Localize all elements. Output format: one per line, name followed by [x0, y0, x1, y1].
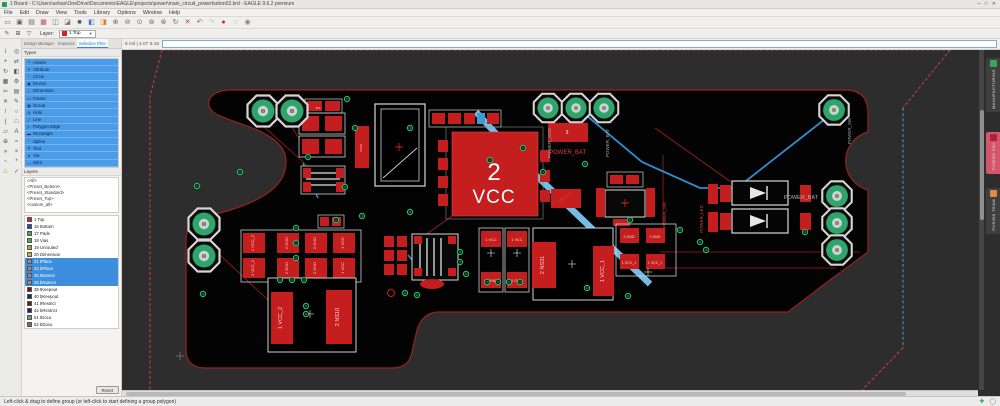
net-label: 1 VCC_1 [622, 261, 637, 265]
errors-tool-icon[interactable]: ⚠ [0, 169, 11, 176]
layer-color-swatch [27, 224, 32, 229]
layer-row-25-tnames[interactable]: 25 tNames [25, 272, 118, 279]
layer-color-swatch [27, 259, 32, 264]
drc-tool-icon[interactable]: ✓ [11, 169, 22, 176]
layer-color-swatch [27, 238, 32, 243]
types-header: Types [22, 49, 121, 57]
layer-label: Layer: [40, 31, 54, 37]
filter-icon[interactable]: ▽ [25, 30, 33, 37]
menu-tools[interactable]: Tools [74, 10, 87, 16]
test-point-via[interactable] [457, 259, 462, 264]
ns31-vcc1-module[interactable]: 2 NS31 1 VCC_1 [532, 228, 614, 300]
test-point-via[interactable] [677, 227, 682, 232]
layer-color-swatch [27, 245, 32, 250]
test-point-via[interactable] [506, 279, 511, 284]
rectangle-icon: ▬ [27, 132, 31, 136]
test-point-via[interactable] [277, 277, 282, 282]
info-tool-icon[interactable]: i [0, 49, 11, 56]
layer-row-17-pads[interactable]: 17 Pads [25, 230, 118, 237]
refresh-icon[interactable]: ↻ [171, 18, 180, 27]
layer-selected: 1 Top [69, 31, 81, 36]
tab-selection-filter[interactable]: Selection Filter [77, 39, 108, 48]
test-point-via[interactable] [293, 255, 298, 260]
test-point-via[interactable] [305, 154, 310, 159]
status-dot-icon[interactable]: ◯ [989, 398, 996, 406]
rail-tab-label: FUSION TEAM [991, 199, 996, 231]
origin-cross [176, 352, 184, 360]
pad-net-label: POWER_BAT [605, 129, 610, 158]
layer-color-swatch [27, 308, 32, 313]
net-label: 2 GND [312, 237, 317, 249]
zoom-select-icon[interactable]: ⊚ [147, 18, 156, 27]
layer-name: 19 Unrouted [34, 245, 58, 250]
type-label: Spline [33, 139, 45, 144]
net-label: 1 VCC_2 [250, 259, 255, 276]
type-row-hole[interactable]: ◎Hole [25, 109, 118, 116]
test-point-via[interactable] [333, 217, 338, 222]
net-label: 2 GND [284, 237, 289, 249]
text-icon: A [27, 146, 31, 150]
main-toolbar: ▭▣▤▦◫◪■◧◨⊕⊖⊙⊚⊛↻✕↶↷●○◉ [0, 17, 1000, 29]
coordinate-bar: 5 mil | 4.07 9.15 [122, 39, 1000, 50]
net-label: 2 GND [312, 262, 317, 274]
layer-name: 39 tKeepout [34, 287, 57, 292]
via-icon: ● [27, 154, 31, 158]
test-point-via[interactable] [495, 279, 500, 284]
layer-row-51-tdocu[interactable]: 51 tDocu [25, 314, 118, 321]
test-point-via[interactable] [352, 125, 357, 130]
part-name: POWER_BAT [549, 150, 587, 156]
grid-coordinates: 5 mil | 4.07 9.15 [125, 42, 159, 47]
menu-help[interactable]: Help [169, 10, 180, 16]
test-point-via[interactable] [484, 279, 489, 284]
layer-name: 21 tPlace [34, 259, 52, 264]
ratsnest-tool-icon[interactable]: * [11, 159, 22, 166]
menu-window[interactable]: Window [143, 10, 162, 16]
layer-select[interactable]: 1 Top ▼ [59, 30, 96, 38]
layer-row-39-tkeepout[interactable]: 39 tKeepout [25, 286, 118, 293]
layer-row-16-bottom[interactable]: 16 Bottom [25, 223, 118, 230]
spline-icon: ~ [27, 139, 31, 143]
type-row-line[interactable]: ╱Line [25, 117, 118, 124]
layer-presets-list: <All><Preset_Bottom><Preset_Standard><Pr… [24, 177, 119, 213]
type-row-via[interactable]: ●Via [25, 152, 118, 159]
device-icon: ▣ [27, 81, 31, 86]
net-label: 1 VCC [485, 238, 496, 242]
part-designator: 3 [566, 130, 569, 136]
test-point-via[interactable] [293, 240, 298, 245]
layer-name: 18 Vias [34, 238, 48, 243]
status-hint: Left-click & drag to define group (or le… [4, 399, 979, 405]
airwire-icon: ≈ [27, 60, 31, 64]
layer-row-41-trestrict[interactable]: 41 tRestrict [25, 300, 118, 307]
reset-button[interactable]: Reset [96, 386, 119, 394]
layer-color-swatch [27, 252, 32, 257]
layer-color-swatch [27, 280, 32, 285]
net-label: 2 GND [624, 235, 635, 239]
diode-label: POWER_LED [699, 205, 704, 233]
pad-net-label: POWER_GND [547, 127, 552, 158]
menu-view[interactable]: View [56, 10, 68, 16]
close-button[interactable]: ✕ [992, 1, 996, 7]
display-options-icon[interactable]: ◨ [99, 18, 108, 27]
via-tool-icon[interactable]: ⊕ [0, 139, 11, 146]
preset-custom-all[interactable]: <custom_all> [25, 202, 118, 208]
layer-row-52-bdocu[interactable]: 52 bDocu [25, 321, 118, 328]
group-tool-icon[interactable]: ▦ [0, 79, 11, 86]
highlighted-pad [477, 113, 485, 124]
test-point-via[interactable] [582, 161, 587, 166]
net-label: 2 GND [284, 262, 289, 274]
wire-icon: — [27, 161, 31, 165]
net-label: 1 VCC_1 [648, 261, 663, 265]
menu-draw[interactable]: Draw [36, 10, 49, 16]
type-label: Rectangle [33, 131, 53, 136]
horizontal-scrollbar[interactable] [122, 390, 978, 396]
group-icon: ▦ [27, 103, 31, 108]
layer-row-26-bnames[interactable]: 26 bNames [25, 279, 118, 286]
attribute-icon: ✎ [27, 67, 31, 72]
menu-options[interactable]: Options [117, 10, 136, 16]
type-label: Text [33, 146, 41, 151]
layer-name: 42 bRestrict [34, 308, 57, 313]
cut-tool-icon[interactable]: ✂ [0, 89, 11, 96]
right-tab-rail: MANUFACTURINGFUSION 360FUSION TEAM [984, 50, 1000, 390]
ring-icon[interactable]: ○ [231, 18, 240, 27]
test-point-via[interactable] [359, 213, 364, 218]
chip-label: 1 VCC_2 [278, 307, 284, 329]
polygon-tool-icon[interactable]: ▱ [0, 129, 11, 136]
net-label: 1 VCC [340, 262, 345, 274]
swap-tool-icon[interactable]: ⇄ [11, 59, 22, 66]
circle-tool-icon[interactable]: ○ [11, 109, 22, 116]
type-label: Dimension [33, 88, 54, 93]
line-icon: ╱ [27, 117, 31, 122]
layer-swatch [62, 31, 67, 36]
menu-library[interactable]: Library [94, 10, 110, 16]
mirror-tool-icon[interactable]: ◧ [11, 69, 22, 76]
minimize-button[interactable]: ─ [977, 1, 981, 7]
layer-color-swatch [27, 231, 32, 236]
side-panel-tabs: Design ManagerInspectorSelection Filter [22, 39, 121, 49]
type-row-wire[interactable]: —Wire [25, 160, 118, 167]
print-icon[interactable]: ▤ [27, 18, 36, 27]
layer-row-1-top[interactable]: 1 Top [25, 216, 118, 223]
chip-label: 2 NS10 [335, 308, 341, 326]
zoom-redraw-icon[interactable]: ⊛ [159, 18, 168, 27]
open-icon[interactable]: ▭ [3, 18, 12, 27]
arc-tool-icon[interactable]: ( [0, 119, 11, 126]
layer-color-icon[interactable]: ◧ [87, 18, 96, 27]
pcb-canvas[interactable]: vcc [122, 50, 1000, 396]
route-tool-icon[interactable]: » [0, 149, 11, 156]
side-panel: Design ManagerInspectorSelection Filter … [22, 39, 122, 396]
pad-net-label: POWER_BAT [784, 195, 819, 201]
menu-bar: FileEditDrawViewToolsLibraryOptionsWindo… [0, 9, 1000, 17]
paste-tool-icon[interactable]: ▤ [11, 89, 22, 96]
type-label: Attribute [33, 67, 49, 72]
layer-toolbar: ✎⊞▽ Layer: 1 Top ▼ [0, 29, 1000, 39]
layer-name: 16 Bottom [34, 224, 54, 229]
type-row-text[interactable]: AText [25, 145, 118, 152]
tiny-net-label: vcc [315, 106, 320, 110]
wire-tool-icon[interactable]: / [0, 109, 11, 116]
command-tool-column: i◎+⇄↻◧▦⚙✂▤✕✎/○(□▱A⊕≈»×~*⚠✓ [0, 39, 22, 396]
layers-header: Layers [22, 168, 121, 176]
test-point-via[interactable] [407, 125, 412, 130]
eagle-app-icon [2, 2, 7, 7]
layer-name: 41 tRestrict [34, 301, 56, 306]
test-point-via[interactable] [303, 311, 308, 316]
layer-name: 51 tDocu [34, 315, 51, 320]
type-label: Group [33, 103, 45, 108]
menu-file[interactable]: File [4, 10, 13, 16]
type-label: Circle [33, 74, 44, 79]
name-tool-icon[interactable]: ✎ [11, 99, 22, 106]
layer-color-swatch [27, 301, 32, 306]
status-bar: Left-click & drag to define group (or le… [0, 396, 1000, 406]
title-bar: 1 Board - C:\Users\sebas\OneDrive\Docume… [0, 0, 1000, 9]
rail-tab-manufacturing[interactable]: MANUFACTURING [986, 58, 1000, 112]
layer-color-swatch [27, 315, 32, 320]
type-row-device[interactable]: ▣Device [25, 81, 118, 88]
type-row-frame[interactable]: ▭Frame [25, 95, 118, 102]
type-row-rectangle[interactable]: ▬Rectangle [25, 131, 118, 138]
test-point-via[interactable] [237, 169, 242, 174]
layer-row-18-vias[interactable]: 18 Vias [25, 237, 118, 244]
pad-net-label: POWER_SW [847, 117, 852, 144]
layer-color-swatch [27, 266, 32, 271]
type-label: Wire [33, 160, 42, 165]
type-row-circle[interactable]: ○Circle [25, 73, 118, 80]
menu-edit[interactable]: Edit [20, 10, 29, 16]
meander-tool-icon[interactable]: ~ [0, 159, 11, 166]
layer-row-21-tplace[interactable]: 21 tPlace [25, 258, 118, 265]
sheet-icon[interactable]: ◫ [51, 18, 60, 27]
types-list: ≈Airwire✎Attribute○Circle▣Device↔Dimensi… [24, 58, 119, 168]
type-row-group[interactable]: ▦Group [25, 102, 118, 109]
type-row-spline[interactable]: ~Spline [25, 138, 118, 145]
scissors-icon[interactable]: ✕ [183, 18, 192, 27]
layer-color-swatch [27, 294, 32, 299]
grid-icon[interactable]: ⊞ [14, 30, 22, 37]
signal-tool-icon[interactable]: ≈ [11, 139, 22, 146]
zoom-in-icon[interactable]: ⊕ [111, 18, 120, 27]
delete-tool-icon[interactable]: ✕ [0, 99, 11, 106]
status-icons: ✚◯ [979, 398, 996, 406]
fusion-team-icon [990, 190, 997, 197]
layer-color-swatch [27, 273, 32, 278]
tiny-net-label: vcco [359, 144, 363, 152]
test-point-via[interactable] [342, 184, 347, 189]
type-row-dimension[interactable]: ↔Dimension [25, 88, 118, 95]
type-label: Airwire [33, 60, 46, 65]
layer-name: 20 Dimension [34, 252, 60, 257]
rail-tab-fusion-360[interactable]: FUSION 360 [986, 132, 1000, 174]
layer-color-swatch [27, 322, 32, 327]
layer-name: 1 Top [34, 217, 44, 222]
test-point-via[interactable] [517, 279, 522, 284]
board-icon[interactable]: ■ [75, 18, 84, 27]
layers-list: 1 Top16 Bottom17 Pads18 Vias19 Unrouted2… [24, 215, 119, 329]
command-input[interactable] [162, 40, 997, 48]
test-point-via[interactable] [344, 96, 349, 101]
type-row-airwire[interactable]: ≈Airwire [25, 59, 118, 66]
test-point-via[interactable] [625, 293, 630, 298]
layer-name: 40 bKeepout [34, 294, 58, 299]
test-point-via[interactable] [584, 285, 589, 290]
type-label: Via [33, 153, 39, 158]
zoom-out-icon[interactable]: ⊖ [123, 18, 132, 27]
net-label: 1 VCC_2 [250, 234, 255, 251]
layer-name: 17 Pads [34, 231, 50, 236]
pencil-icon[interactable]: ✎ [3, 30, 11, 37]
layer-name: 52 bDocu [34, 322, 52, 327]
layer-color-swatch [27, 217, 32, 222]
test-point-via[interactable] [463, 271, 468, 276]
test-point-via[interactable] [627, 217, 632, 222]
change-tool-icon[interactable]: ⚙ [11, 79, 22, 86]
chevron-down-icon: ▼ [89, 31, 93, 36]
layer-name: 22 bPlace [34, 266, 53, 271]
tab-inspector[interactable]: Inspector [56, 39, 77, 48]
chip-label: 1 VCC_1 [600, 260, 606, 282]
save-icon[interactable]: ▣ [15, 18, 24, 27]
test-point-via[interactable] [402, 290, 407, 295]
test-point-via[interactable] [487, 157, 492, 162]
undo-icon[interactable]: ↶ [195, 18, 204, 27]
menu-component[interactable]: MENU [551, 189, 581, 208]
test-point-via[interactable] [194, 183, 199, 188]
text-tool-icon[interactable]: A [11, 129, 22, 136]
hole-icon: ◎ [27, 110, 31, 115]
layer-row-40-bkeepout[interactable]: 40 bKeepout [25, 293, 118, 300]
power-bat-component[interactable]: 3 POWER_BAT [548, 123, 588, 156]
rail-tab-label: FUSION 360 [991, 143, 996, 170]
net-label: 1 VCC [511, 238, 522, 242]
record-icon[interactable]: ● [219, 18, 228, 27]
type-label: Polygon Edge [33, 124, 60, 129]
test-point-via[interactable] [293, 225, 298, 230]
test-point-via[interactable] [540, 169, 545, 174]
net-label: 1 VCC [340, 237, 345, 249]
manufacturing-icon [990, 60, 997, 67]
zoom-fit-icon[interactable]: ⊙ [135, 18, 144, 27]
rail-tab-label: MANUFACTURING [991, 69, 996, 109]
layer-row-22-bplace[interactable]: 22 bPlace [25, 265, 118, 272]
layer-row-20-dimension[interactable]: 20 Dimension [25, 251, 118, 258]
circle-icon: ○ [27, 74, 31, 78]
fusion-360-icon [990, 134, 997, 141]
test-point-via[interactable] [289, 277, 294, 282]
chip-name: VCC [472, 187, 515, 208]
type-label: Device [33, 81, 46, 86]
eye-tool-icon[interactable]: ◎ [11, 49, 22, 56]
test-point-via[interactable] [414, 292, 419, 297]
type-label: Frame [33, 96, 46, 101]
net-label: 2 GND [650, 235, 661, 239]
layer-row-19-unrouted[interactable]: 19 Unrouted [25, 244, 118, 251]
rect-tool-icon[interactable]: □ [11, 119, 22, 126]
window-controls: ─□✕ [977, 1, 998, 7]
test-point-via[interactable] [802, 229, 807, 234]
layer-color-swatch [27, 287, 32, 292]
layer-name: 26 bNames [34, 280, 56, 285]
test-point-via[interactable] [407, 209, 412, 214]
test-point-via[interactable] [303, 303, 308, 308]
maximize-button[interactable]: □ [985, 1, 988, 7]
test-point-via[interactable] [697, 239, 702, 244]
ripup-tool-icon[interactable]: × [11, 149, 22, 156]
type-row-polygon-edge[interactable]: ▷Polygon Edge [25, 124, 118, 131]
test-point-via[interactable] [703, 247, 708, 252]
type-row-attribute[interactable]: ✎Attribute [25, 66, 118, 73]
polygon-edge-icon: ▷ [27, 124, 31, 129]
type-label: Line [33, 117, 41, 122]
layer-name: 25 tNames [34, 273, 55, 278]
layer-row-42-brestrict[interactable]: 42 bRestrict [25, 307, 118, 314]
image-export-icon[interactable]: ▦ [39, 18, 48, 27]
account-icon[interactable]: ◉ [243, 18, 252, 27]
add-status-icon[interactable]: ✚ [979, 398, 984, 406]
frame-icon: ▭ [27, 96, 31, 101]
chart-icon[interactable]: ◪ [63, 18, 72, 27]
test-point-via[interactable] [200, 291, 205, 296]
dimension-icon: ↔ [27, 89, 31, 93]
redo-icon[interactable]: ↷ [207, 18, 216, 27]
type-label: Hole [33, 110, 42, 115]
rotate-tool-icon[interactable]: ↻ [0, 69, 11, 76]
test-point-via[interactable] [301, 277, 306, 282]
window-title: 1 Board - C:\Users\sebas\OneDrive\Docume… [10, 1, 977, 7]
move-tool-icon[interactable]: + [0, 59, 11, 66]
tab-design-manager[interactable]: Design Manager [22, 39, 56, 48]
rail-tab-fusion-team[interactable]: FUSION TEAM [986, 188, 1000, 234]
vcc2-ns10-module[interactable]: 1 VCC_2 2 NS10 [268, 278, 356, 352]
chip-label: 2 NS31 [540, 256, 546, 274]
test-point-via[interactable] [457, 249, 462, 254]
test-point-via[interactable] [520, 145, 525, 150]
